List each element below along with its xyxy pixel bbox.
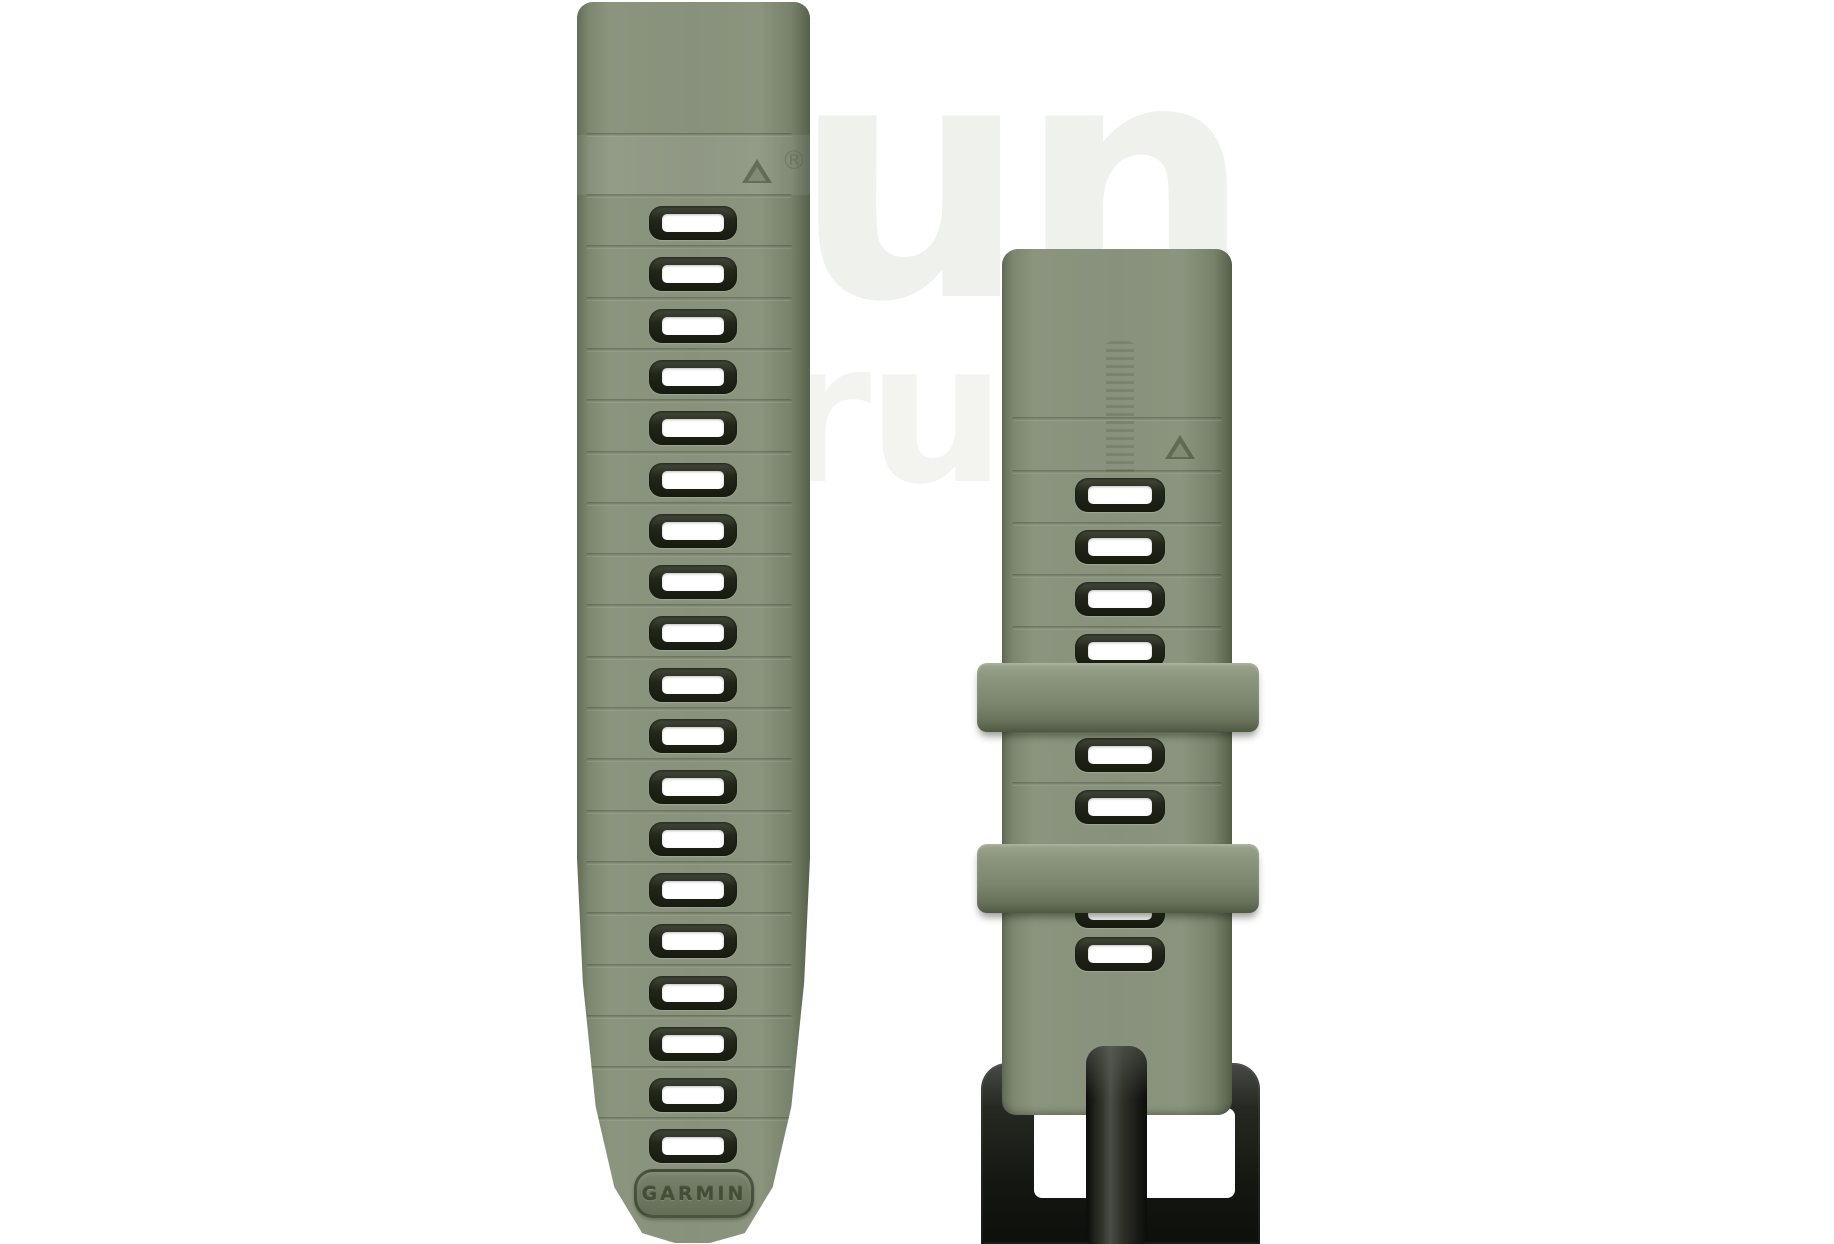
adjustment-hole-opening xyxy=(1088,746,1152,764)
adjustment-hole xyxy=(1075,478,1165,512)
strap-ridge xyxy=(586,194,792,198)
strap-ridge xyxy=(586,133,792,137)
adjustment-hole xyxy=(649,257,737,291)
strap-ridge xyxy=(586,348,792,352)
keeper-loop-lower xyxy=(977,844,1259,913)
adjustment-hole xyxy=(649,1129,737,1163)
adjustment-hole xyxy=(649,770,737,804)
strap-ridge xyxy=(586,861,792,865)
adjustment-hole-opening xyxy=(662,830,724,848)
strap-ridge xyxy=(586,707,792,711)
strap-ridge xyxy=(1012,417,1222,421)
adjustment-hole xyxy=(1075,937,1165,971)
adjustment-hole-opening xyxy=(1088,590,1152,608)
adjustment-hole-opening xyxy=(662,676,724,694)
watermark-registered-mark: ® xyxy=(781,146,807,176)
strap-ridge xyxy=(586,451,792,455)
adjustment-hole xyxy=(1075,530,1165,564)
right-strap-rib-texture xyxy=(1106,341,1134,477)
alignment-triangle-icon xyxy=(1165,435,1195,459)
adjustment-hole xyxy=(1075,738,1165,772)
left-strap-top-band xyxy=(577,135,810,195)
adjustment-hole-opening xyxy=(662,1137,724,1155)
left-strap: GARMIN xyxy=(577,2,810,1243)
adjustment-hole xyxy=(649,1027,737,1061)
adjustment-hole xyxy=(649,1078,737,1112)
adjustment-hole xyxy=(649,719,737,753)
adjustment-hole-opening xyxy=(662,1035,724,1053)
adjustment-hole xyxy=(649,514,737,548)
adjustment-hole-opening xyxy=(1088,642,1152,660)
adjustment-hole xyxy=(649,616,737,650)
adjustment-hole xyxy=(649,206,737,240)
strap-ridge xyxy=(1012,522,1222,526)
strap-ridge xyxy=(586,1015,792,1019)
adjustment-hole xyxy=(1075,790,1165,824)
strap-ridge xyxy=(586,399,792,403)
strap-ridge xyxy=(1012,574,1222,578)
strap-ridge xyxy=(1012,626,1222,630)
buckle-prong xyxy=(1086,1046,1147,1244)
adjustment-hole-opening xyxy=(662,522,724,540)
strap-ridge xyxy=(586,1117,792,1121)
adjustment-hole-opening xyxy=(662,727,724,745)
adjustment-hole xyxy=(649,924,737,958)
adjustment-hole-opening xyxy=(662,368,724,386)
adjustment-hole-opening xyxy=(662,214,724,232)
strap-ridge xyxy=(586,656,792,660)
garmin-logo-badge: GARMIN xyxy=(634,1169,754,1218)
adjustment-hole xyxy=(649,463,737,497)
adjustment-hole-opening xyxy=(662,881,724,899)
adjustment-hole-opening xyxy=(1088,538,1152,556)
strap-ridge xyxy=(586,1066,792,1070)
adjustment-hole-opening xyxy=(662,573,724,591)
adjustment-hole xyxy=(649,822,737,856)
strap-ridge xyxy=(586,297,792,301)
adjustment-hole xyxy=(649,668,737,702)
buckle-prong-head xyxy=(1086,1046,1147,1112)
adjustment-hole-opening xyxy=(662,1086,724,1104)
adjustment-hole-opening xyxy=(662,419,724,437)
adjustment-hole xyxy=(649,309,737,343)
adjustment-hole-opening xyxy=(662,471,724,489)
adjustment-hole-opening xyxy=(662,265,724,283)
keeper-loop-upper xyxy=(977,663,1259,732)
adjustment-hole-opening xyxy=(662,932,724,950)
strap-ridge xyxy=(586,502,792,506)
garmin-logo-text: GARMIN xyxy=(642,1183,747,1205)
strap-ridge xyxy=(586,964,792,968)
adjustment-hole-opening xyxy=(662,778,724,796)
strap-ridge xyxy=(586,758,792,762)
adjustment-hole-opening xyxy=(662,984,724,1002)
strap-ridge xyxy=(586,553,792,557)
adjustment-hole-opening xyxy=(1088,945,1152,963)
adjustment-hole xyxy=(649,873,737,907)
alignment-triangle-icon xyxy=(742,159,772,183)
adjustment-hole xyxy=(649,565,737,599)
adjustment-hole xyxy=(649,976,737,1010)
strap-ridge xyxy=(586,245,792,249)
strap-ridge xyxy=(586,810,792,814)
adjustment-hole xyxy=(649,360,737,394)
strap-ridge xyxy=(1012,782,1222,786)
adjustment-hole-opening xyxy=(1088,486,1152,504)
adjustment-hole xyxy=(1075,582,1165,616)
adjustment-hole-opening xyxy=(1088,798,1152,816)
adjustment-hole-opening xyxy=(662,624,724,642)
product-photo: run ru ® GARMIN xyxy=(0,0,1834,1244)
strap-ridge xyxy=(586,604,792,608)
adjustment-hole xyxy=(649,411,737,445)
adjustment-hole-opening xyxy=(662,317,724,335)
strap-ridge xyxy=(586,912,792,916)
strap-ridge xyxy=(1012,470,1222,474)
